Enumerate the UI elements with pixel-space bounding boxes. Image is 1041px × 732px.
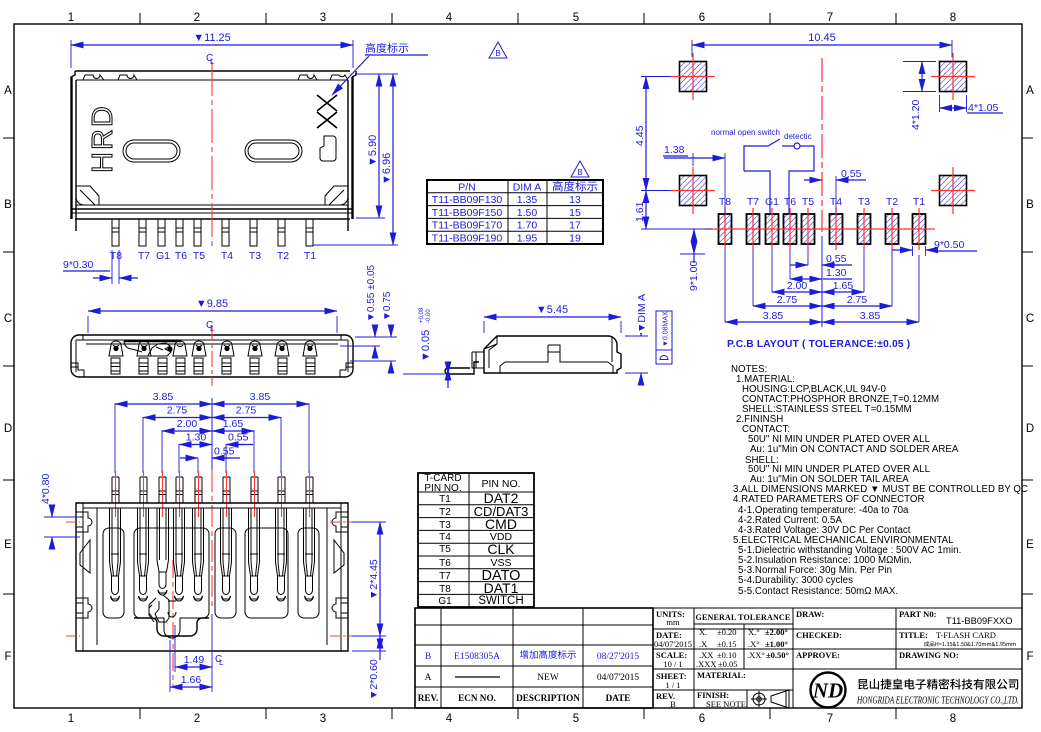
svg-text:T1: T1 (913, 196, 925, 208)
svg-text:3.85: 3.85 (153, 391, 174, 403)
svg-text:G1: G1 (156, 250, 170, 262)
svg-text:DATE: DATE (606, 693, 631, 703)
svg-text:B: B (425, 652, 431, 662)
svg-text:P/N: P/N (458, 182, 476, 194)
svg-text:APPROVE:: APPROVE: (796, 650, 840, 660)
svg-text:6: 6 (699, 12, 705, 24)
svg-text:1.65: 1.65 (223, 418, 244, 430)
svg-text:3.85: 3.85 (763, 310, 784, 322)
svg-text:4*1.05: 4*1.05 (968, 102, 999, 114)
svg-text:T7: T7 (439, 571, 451, 582)
svg-text:X.: X. (699, 627, 707, 637)
svg-text:1: 1 (68, 12, 74, 24)
svg-text:T7: T7 (747, 196, 759, 208)
svg-text:T2: T2 (439, 507, 451, 518)
svg-text:A: A (1026, 85, 1034, 97)
svg-text:▼9.85: ▼9.85 (196, 298, 228, 310)
svg-text:B: B (495, 49, 500, 58)
svg-text:GENERAL TOLERANCE: GENERAL TOLERANCE (696, 613, 791, 622)
svg-text:ND: ND (812, 679, 843, 703)
svg-text:4.RATED PARAMETERS OF CONNECTO: 4.RATED PARAMETERS OF CONNECTOR (733, 494, 925, 505)
svg-text:3.85: 3.85 (860, 310, 881, 322)
svg-text:-0.00: -0.00 (426, 309, 432, 323)
svg-text:TITLE:: TITLE: (899, 630, 928, 640)
svg-text:▼0.55 ±0.05: ▼0.55 ±0.05 (366, 264, 377, 322)
svg-text:2.75: 2.75 (236, 405, 257, 417)
svg-text:5: 5 (573, 12, 579, 24)
svg-text:0.55: 0.55 (826, 253, 847, 265)
svg-text:2.00: 2.00 (177, 418, 198, 430)
svg-text:DAT1: DAT1 (484, 580, 519, 596)
svg-text:T1: T1 (439, 494, 451, 505)
svg-text:DRAW:: DRAW: (796, 609, 825, 619)
svg-text:8: 8 (950, 713, 956, 725)
svg-text:10.45: 10.45 (808, 32, 836, 44)
svg-text:±0.20: ±0.20 (717, 627, 737, 637)
svg-text:▼DIM A: ▼DIM A (636, 294, 648, 333)
svg-text:±0.50°: ±0.50° (766, 650, 789, 660)
svg-text:CHECKED:: CHECKED: (796, 630, 842, 640)
svg-text:2.00: 2.00 (787, 280, 808, 292)
svg-text:T4: T4 (439, 532, 451, 543)
svg-text:1.66: 1.66 (181, 674, 202, 686)
svg-text:3: 3 (320, 12, 326, 24)
svg-text:Au: 1u"Min ON CONTACT AND SOL: Au: 1u"Min ON CONTACT AND SOLDER AREA (750, 444, 959, 455)
svg-text:±0.15: ±0.15 (717, 639, 737, 649)
svg-text:3: 3 (320, 713, 326, 725)
svg-text:▼0.08MAX: ▼0.08MAX (663, 311, 670, 347)
svg-text:2.75: 2.75 (777, 294, 798, 306)
svg-text:L: L (219, 658, 224, 667)
svg-text:9*0.50: 9*0.50 (934, 239, 965, 251)
svg-text:B: B (4, 199, 12, 211)
svg-text:3.85: 3.85 (250, 391, 271, 403)
svg-text:7: 7 (827, 12, 833, 24)
svg-text:T11-BB09F150: T11-BB09F150 (432, 207, 503, 219)
svg-text:C: C (1026, 313, 1034, 325)
svg-text:1.61: 1.61 (634, 201, 646, 222)
svg-text:T2: T2 (277, 250, 289, 262)
svg-text:DRAWING NO:: DRAWING NO: (899, 650, 959, 660)
svg-text:9*0.30: 9*0.30 (63, 259, 94, 271)
svg-text:8: 8 (950, 12, 956, 24)
svg-text:1.30: 1.30 (186, 432, 207, 444)
svg-text:4: 4 (446, 12, 453, 24)
svg-text:0.55: 0.55 (228, 432, 249, 444)
svg-text:PART N0:: PART N0: (899, 609, 937, 619)
svg-text:C: C (4, 313, 12, 325)
svg-text:9*1.00: 9*1.00 (688, 260, 700, 291)
svg-text:1.30: 1.30 (826, 267, 847, 279)
svg-text:T11-BB09F190: T11-BB09F190 (432, 232, 503, 244)
svg-text:B: B (1026, 199, 1034, 211)
svg-text:MATERIAL:: MATERIAL: (697, 670, 746, 680)
svg-text:1.70: 1.70 (517, 220, 538, 232)
svg-text:CLK: CLK (487, 541, 515, 557)
svg-text:+0.08: +0.08 (419, 307, 425, 323)
svg-text:▼2*0.60: ▼2*0.60 (368, 659, 380, 700)
svg-text:HONGRIDA ELECTRONIC TECHNOLOGY: HONGRIDA ELECTRONIC TECHNOLOGY CO.,LTD. (856, 696, 1019, 707)
svg-text:4: 4 (446, 713, 453, 725)
svg-text:5: 5 (573, 713, 579, 725)
svg-text:D: D (1026, 423, 1034, 435)
svg-text:detectic: detectic (784, 132, 812, 141)
svg-text:T11-BB09F130: T11-BB09F130 (432, 194, 503, 206)
svg-text:SEE NOTE: SEE NOTE (706, 699, 746, 709)
svg-text:REV.: REV. (418, 693, 439, 703)
svg-text:T5: T5 (802, 196, 814, 208)
svg-text:B: B (670, 699, 676, 709)
svg-text:04/07'2015: 04/07'2015 (654, 639, 692, 649)
svg-text:1.95: 1.95 (517, 232, 538, 244)
svg-text:0.55: 0.55 (841, 168, 862, 180)
svg-text:T6: T6 (175, 250, 187, 262)
svg-text:17: 17 (569, 220, 581, 232)
svg-text:.X°: .X° (748, 639, 760, 649)
svg-text:1.65: 1.65 (833, 280, 854, 292)
svg-text:T8: T8 (439, 584, 451, 595)
svg-text:5-4.Durability: 3000 cycles: 5-4.Durability: 3000 cycles (738, 575, 853, 586)
svg-text:L: L (210, 57, 215, 66)
svg-text:4*0.80: 4*0.80 (40, 473, 52, 504)
svg-text:PIN NO.: PIN NO. (424, 483, 461, 494)
svg-text:T11-BB09F170: T11-BB09F170 (432, 220, 503, 232)
svg-text:T6: T6 (784, 196, 796, 208)
svg-text:PIN NO.: PIN NO. (481, 478, 520, 490)
svg-text:T3: T3 (249, 250, 261, 262)
svg-text:.X: .X (699, 639, 707, 649)
svg-text:T3: T3 (858, 196, 870, 208)
svg-text:DESCRIPTION: DESCRIPTION (516, 693, 580, 703)
svg-text:P.C.B LAYOUT ( TOLERANCE:±0.0: P.C.B LAYOUT ( TOLERANCE:±0.05 ) (727, 339, 910, 350)
svg-text:±0.05: ±0.05 (718, 659, 738, 669)
svg-text:19: 19 (569, 232, 581, 244)
svg-text:±1.00°: ±1.00° (765, 639, 788, 649)
svg-text:▼0.05: ▼0.05 (420, 330, 432, 362)
svg-text:T-FLASH CARD: T-FLASH CARD (936, 630, 996, 640)
svg-text:2.75: 2.75 (167, 405, 188, 417)
svg-text:.XX°: .XX° (747, 650, 765, 660)
svg-text:A: A (4, 85, 12, 97)
svg-text:D: D (4, 423, 12, 435)
svg-text:X.°: X.° (748, 627, 760, 637)
svg-text:L: L (210, 324, 215, 333)
svg-text:1.49: 1.49 (184, 654, 205, 666)
svg-text:T5: T5 (439, 544, 451, 555)
svg-text:SWITCH: SWITCH (478, 595, 523, 607)
svg-text:5-5.Contact Resistance: 50mΩ M: 5-5.Contact Resistance: 50mΩ MAX. (738, 586, 898, 597)
svg-text:T5: T5 (193, 250, 205, 262)
svg-text:F: F (1026, 651, 1033, 663)
svg-text:08/27'2015: 08/27'2015 (597, 652, 640, 662)
svg-text:E: E (4, 539, 12, 551)
svg-text:▼2*4.45: ▼2*4.45 (368, 559, 380, 600)
svg-text:normal open switch: normal open switch (711, 128, 780, 137)
svg-text:CMD: CMD (485, 516, 517, 532)
svg-text:E: E (1026, 539, 1034, 551)
svg-text:E1508305A: E1508305A (454, 652, 500, 662)
svg-text:0.55: 0.55 (214, 446, 235, 458)
svg-text:▼5.45: ▼5.45 (536, 304, 568, 316)
svg-text:▼0.75: ▼0.75 (382, 291, 393, 321)
svg-text:F: F (4, 651, 11, 663)
svg-text:1.35: 1.35 (517, 194, 538, 206)
svg-text:▼5.90: ▼5.90 (367, 135, 379, 167)
svg-text:2.75: 2.75 (847, 294, 868, 306)
svg-text:G1: G1 (765, 196, 779, 208)
svg-text:1.38: 1.38 (664, 144, 685, 156)
svg-text:15: 15 (569, 207, 581, 219)
svg-text:G1: G1 (438, 596, 452, 607)
svg-text:NEW: NEW (537, 673, 559, 683)
svg-text:T7: T7 (138, 250, 150, 262)
svg-text:4*1.20: 4*1.20 (910, 99, 922, 130)
svg-text:10 / 1: 10 / 1 (663, 659, 682, 669)
svg-text:7: 7 (827, 713, 833, 725)
svg-text:6: 6 (699, 713, 705, 725)
svg-text:1 / 1: 1 / 1 (665, 680, 680, 690)
svg-text:mm: mm (666, 617, 680, 627)
svg-text:HRD: HRD (87, 104, 119, 173)
svg-text:T2: T2 (886, 196, 898, 208)
svg-text:T4: T4 (221, 250, 233, 262)
svg-text:ECN NO.: ECN NO. (458, 693, 496, 703)
svg-text:▼6.96: ▼6.96 (381, 153, 393, 185)
svg-text:B: B (577, 168, 582, 177)
svg-text:1.50: 1.50 (517, 207, 538, 219)
svg-text:▼11.25: ▼11.25 (193, 32, 231, 44)
svg-text:T3: T3 (439, 520, 451, 531)
svg-text:13: 13 (569, 194, 581, 206)
svg-text:2: 2 (194, 12, 200, 24)
svg-text:T6: T6 (439, 558, 451, 569)
svg-text:4.45: 4.45 (634, 125, 646, 146)
svg-text:±2.00°: ±2.00° (765, 627, 788, 637)
svg-text:2: 2 (194, 713, 200, 725)
svg-text:1: 1 (68, 713, 74, 725)
svg-text:A: A (425, 673, 432, 683)
svg-text:DIM A: DIM A (513, 182, 542, 194)
svg-text:T11-BB09FXXO: T11-BB09FXXO (946, 616, 1012, 626)
svg-text:04/07'2015: 04/07'2015 (597, 673, 640, 683)
svg-text:T1: T1 (304, 250, 316, 262)
svg-text:.XXX: .XXX (696, 659, 717, 669)
